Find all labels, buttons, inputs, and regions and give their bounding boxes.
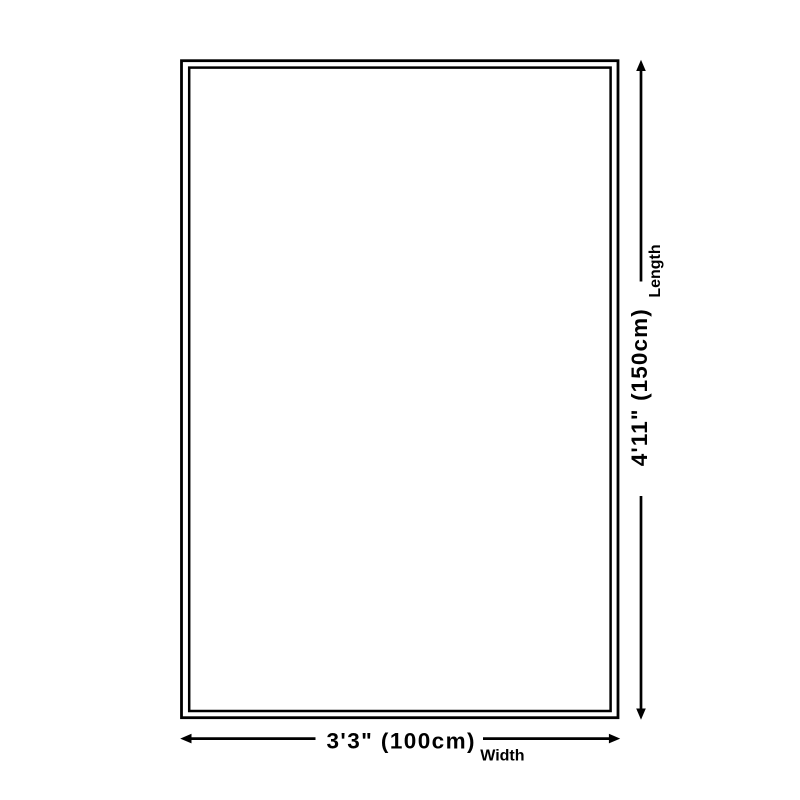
svg-text:Length: Length <box>647 244 664 297</box>
svg-text:3'3" (100cm): 3'3" (100cm) <box>327 728 475 753</box>
svg-text:4'11" (150cm): 4'11" (150cm) <box>627 309 652 466</box>
svg-text:Width: Width <box>480 748 524 765</box>
